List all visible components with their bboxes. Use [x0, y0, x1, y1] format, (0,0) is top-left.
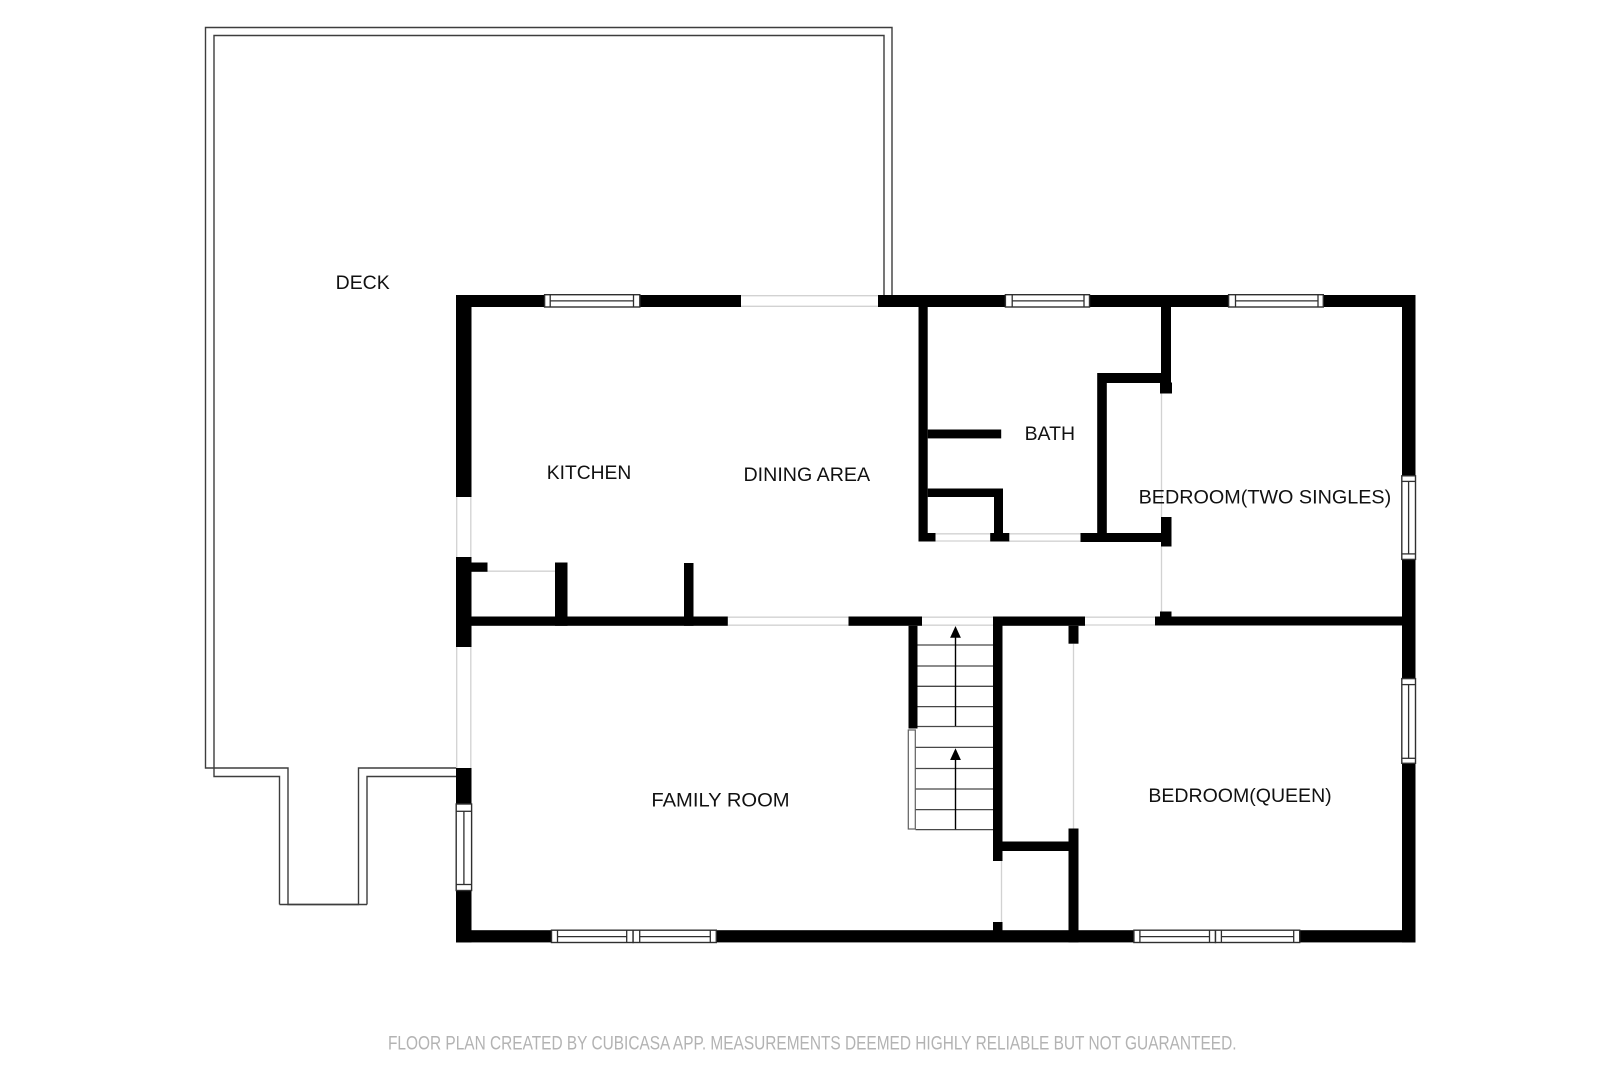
svg-text:KITCHEN: KITCHEN [547, 463, 632, 484]
svg-text:BEDROOM(QUEEN): BEDROOM(QUEEN) [1148, 786, 1331, 807]
svg-text:DECK: DECK [336, 273, 390, 294]
svg-text:BEDROOM(TWO SINGLES): BEDROOM(TWO SINGLES) [1139, 488, 1392, 509]
svg-text:FLOOR PLAN CREATED BY CUBICASA: FLOOR PLAN CREATED BY CUBICASA APP. MEAS… [388, 1034, 1237, 1055]
svg-text:FAMILY ROOM: FAMILY ROOM [651, 791, 789, 812]
svg-text:DINING AREA: DINING AREA [744, 465, 871, 486]
svg-text:BATH: BATH [1025, 424, 1075, 445]
